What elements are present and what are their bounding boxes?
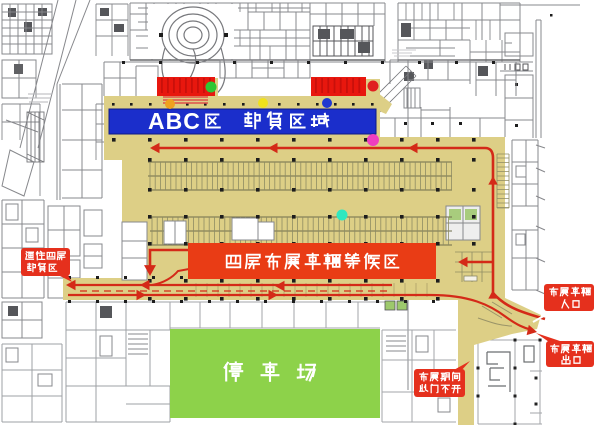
svg-text:ABC: ABC [148,108,201,134]
